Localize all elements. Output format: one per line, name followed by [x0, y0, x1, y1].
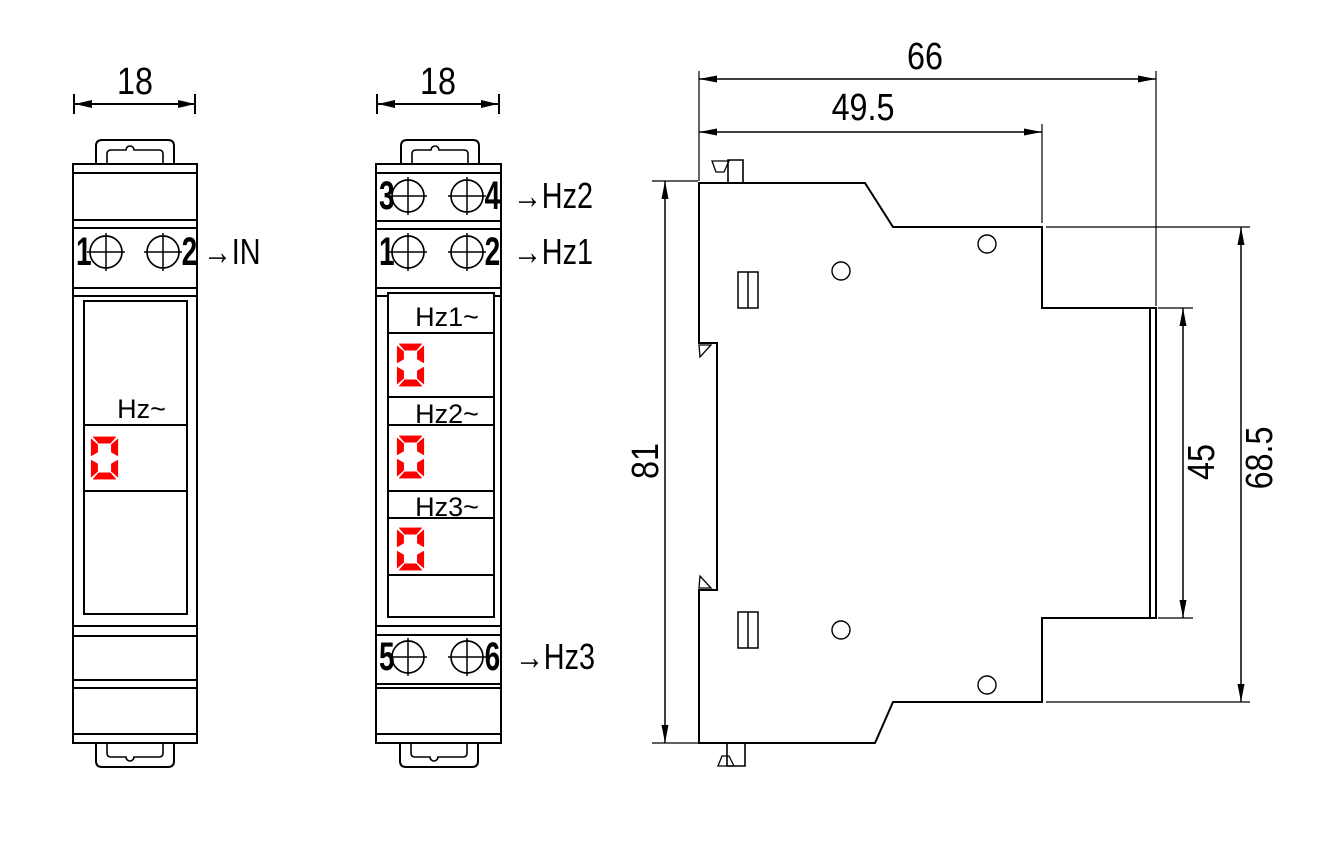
side-profile-outline — [699, 183, 1156, 743]
terminal-number: 2 — [485, 231, 500, 273]
din-top-tab — [95, 138, 175, 164]
dim-arrow-right-icon — [481, 100, 498, 108]
terminal-screw-icon — [447, 232, 487, 272]
terminal-screw-icon — [447, 176, 487, 216]
dim-window-height: 45 — [1182, 428, 1222, 496]
body-groove — [377, 634, 500, 636]
body-groove — [74, 295, 196, 297]
terminal-number: 2 — [182, 231, 197, 273]
dim-overall-depth: 66 — [891, 37, 959, 77]
body-groove — [74, 219, 196, 221]
dim-height: 81 — [626, 423, 666, 500]
terminal-number: 3 — [379, 175, 395, 217]
din-top-tab — [400, 138, 480, 164]
body-groove — [377, 733, 500, 735]
display-label: Hz1~ — [389, 303, 493, 331]
window-divider — [389, 574, 493, 576]
body-groove — [377, 687, 500, 689]
dim-ext-right — [498, 94, 500, 114]
body-groove — [74, 625, 196, 627]
terminal-row-label: →IN — [203, 231, 261, 273]
side-profile-drawing — [600, 30, 1310, 800]
window-divider — [85, 424, 186, 426]
dim-arrow-right-icon — [178, 100, 195, 108]
window-divider — [389, 396, 493, 398]
body-groove — [74, 287, 196, 289]
terminal-number: 4 — [485, 175, 500, 217]
window-divider — [389, 517, 493, 519]
terminal-row-label: →Hz3 — [515, 636, 595, 678]
body-groove — [74, 227, 196, 229]
body-groove — [74, 733, 196, 735]
din-bottom-tab — [95, 743, 175, 769]
window-divider — [389, 332, 493, 334]
dim-body-height: 68.5 — [1240, 416, 1280, 501]
window-divider — [389, 424, 493, 426]
dim-arrow-left-icon — [378, 100, 395, 108]
dim-line — [378, 103, 498, 105]
window-divider — [85, 490, 186, 492]
terminal-number: 5 — [379, 636, 395, 678]
technical-drawing-page: 18 1 2 — [0, 0, 1342, 849]
terminal-screw-icon — [143, 232, 183, 272]
body-groove — [377, 625, 500, 627]
terminal-row-label: →Hz1 — [513, 231, 593, 273]
body-groove — [74, 635, 196, 637]
terminal-screw-icon — [86, 232, 126, 272]
dim-arrow-left-icon — [75, 100, 92, 108]
din-bottom-tab — [399, 743, 479, 769]
body-groove — [377, 287, 500, 289]
dim-front-depth: 49.5 — [821, 88, 906, 128]
terminal-number: 1 — [379, 231, 395, 273]
dim-line — [75, 103, 195, 105]
body-groove — [74, 679, 196, 681]
dim-width-triple: 18 — [404, 62, 472, 102]
terminal-number: 6 — [485, 636, 500, 678]
terminal-screw-icon — [447, 637, 487, 677]
body-groove — [377, 220, 500, 222]
body-groove — [74, 687, 196, 689]
body-groove — [377, 683, 500, 685]
dim-width-single: 18 — [101, 62, 169, 102]
display-label: Hz~ — [85, 395, 186, 423]
body-groove — [377, 228, 500, 230]
body-groove — [74, 172, 196, 174]
terminal-row-label: →Hz2 — [513, 175, 593, 217]
body-groove — [377, 172, 500, 174]
terminal-number: 1 — [76, 231, 92, 273]
